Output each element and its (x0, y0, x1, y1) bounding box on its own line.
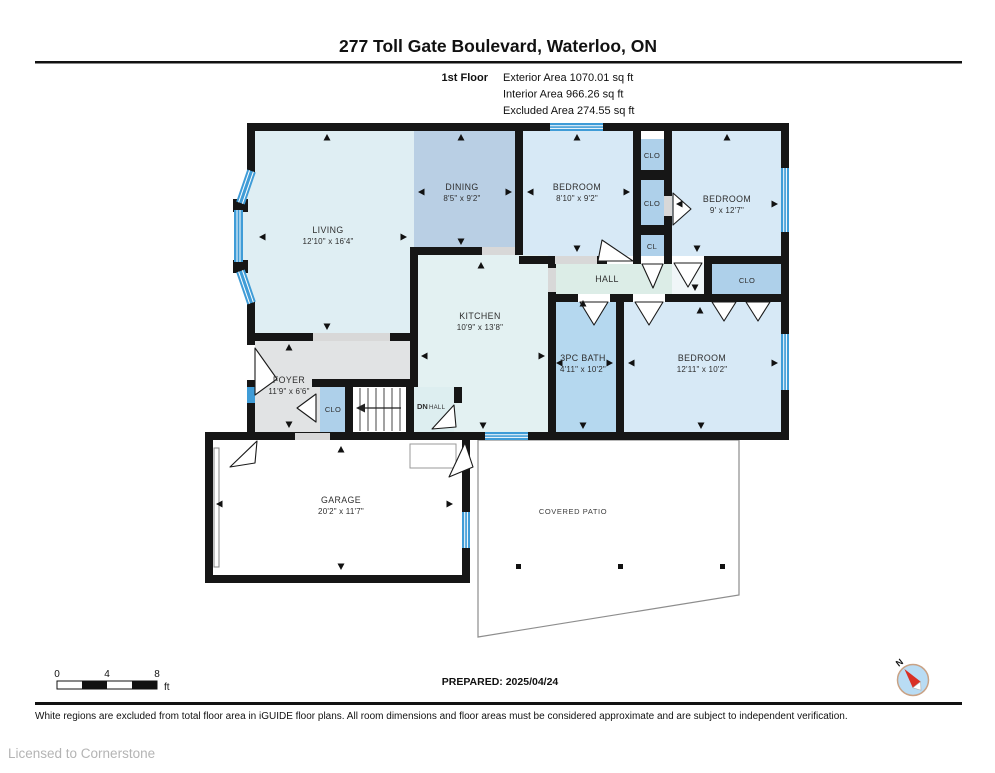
floorplan-page: 277 Toll Gate Boulevard, Waterloo, ON 1s… (0, 0, 995, 768)
hall-wall-bottom-c (665, 294, 789, 302)
scale-tick-4: 4 (104, 669, 110, 680)
living-label: LIVING (312, 225, 343, 235)
cl-label: CL (647, 242, 657, 251)
bedroom-top-label: BEDROOM (553, 182, 601, 192)
window (781, 334, 789, 390)
floor-label: 1st Floor (442, 72, 489, 84)
bath-dims: 4'11" x 10'2" (560, 365, 606, 374)
scale-bar-segment (132, 681, 157, 689)
garage-wall-left (205, 432, 213, 583)
footer-rule (35, 702, 962, 705)
window (247, 387, 255, 403)
scale-bar: 0 4 8 ft (54, 669, 170, 693)
exterior-area: Exterior Area 1070.01 sq ft (503, 72, 633, 84)
scale-tick-8: 8 (154, 669, 160, 680)
window (550, 123, 603, 131)
garage-dims: 20'2" x 11'7" (318, 507, 364, 516)
garage-wall-bottom (205, 575, 470, 583)
bay-window (234, 210, 243, 262)
bedroom-right-label: BEDROOM (703, 194, 751, 204)
clo-sep-wall (633, 225, 672, 235)
patio-post (618, 564, 623, 569)
threshold (555, 256, 597, 264)
foyer-label: FOYER (273, 375, 305, 385)
clo-col-wall-left (633, 131, 641, 256)
window (781, 168, 789, 232)
garage-label: GARAGE (321, 495, 361, 505)
bedroom-right-dims: 9' x 12'7" (710, 206, 744, 215)
kitchen-dims: 10'9" x 13'8" (457, 323, 503, 332)
threshold (664, 196, 672, 216)
title-rule (35, 61, 962, 64)
living-dims: 12'10" x 16'4" (302, 237, 353, 246)
dn-hall-wall-stub (454, 387, 462, 403)
covered-patio-outline (478, 440, 739, 637)
compass-icon: N (892, 656, 928, 696)
wall-top (247, 123, 789, 131)
window (485, 432, 528, 440)
covered-patio-label: COVERED PATIO (539, 507, 607, 516)
dining-dims: 8'5" x 9'2" (443, 194, 480, 203)
license-text: Licensed to Cornerstone (8, 746, 155, 761)
scale-unit: ft (164, 682, 170, 693)
prepared-date: PREPARED: 2025/04/24 (442, 676, 559, 688)
threshold (295, 433, 330, 440)
stairs-wall-right (406, 387, 414, 432)
hall-wall-top-c (664, 256, 672, 264)
threshold (548, 268, 556, 292)
bath-label: 3PC BATH (560, 353, 606, 363)
bedroom-bottom-label: BEDROOM (678, 353, 726, 363)
bedroom-bottom-dims: 12'11" x 10'2" (677, 365, 728, 374)
dining-label: DINING (445, 182, 478, 192)
patio-post (516, 564, 521, 569)
entry-step (410, 444, 456, 468)
clo-col-wall-right (664, 131, 672, 256)
stairs-wall-top (312, 379, 418, 387)
footer-disclaimer: White regions are excluded from total fl… (35, 711, 848, 722)
clo-sep-wall (633, 170, 672, 180)
hall-wall-top-b (633, 256, 641, 264)
bedroom-top-dims: 8'10" x 9'2" (556, 194, 598, 203)
scale-tick-0: 0 (54, 669, 60, 680)
dn-label: DN (417, 402, 428, 411)
clo-right-label: CLO (739, 276, 755, 285)
scale-bar-segment (82, 681, 107, 689)
clo-right-wall-left (704, 256, 712, 302)
foyer-dims: 11'9" x 6'6" (268, 387, 309, 396)
floor-plan-canvas: 277 Toll Gate Boulevard, Waterloo, ON 1s… (0, 0, 995, 768)
page-title: 277 Toll Gate Boulevard, Waterloo, ON (339, 36, 657, 56)
wall-left-upper (247, 123, 255, 173)
clo-stairs-divider (345, 387, 353, 432)
window (462, 512, 470, 548)
threshold (313, 333, 390, 341)
hall-wall-top-d (706, 256, 789, 264)
dn-hall-label: HALL (429, 405, 446, 411)
interior-area: Interior Area 966.26 sq ft (503, 89, 623, 101)
excluded-area: Excluded Area 274.55 sq ft (503, 105, 634, 117)
patio-post (720, 564, 725, 569)
bath-wall-right (616, 294, 624, 432)
kitchen-label: KITCHEN (459, 311, 500, 321)
kitchen-wall-left (410, 255, 418, 387)
compass-north-label: N (894, 657, 905, 669)
hall-label: HALL (595, 274, 619, 284)
threshold (482, 247, 515, 255)
clo-top-label: CLO (644, 151, 660, 160)
clo-mid-label: CLO (644, 199, 660, 208)
dining-wall-right (515, 131, 523, 247)
clo-foyer-label: CLO (325, 405, 341, 414)
